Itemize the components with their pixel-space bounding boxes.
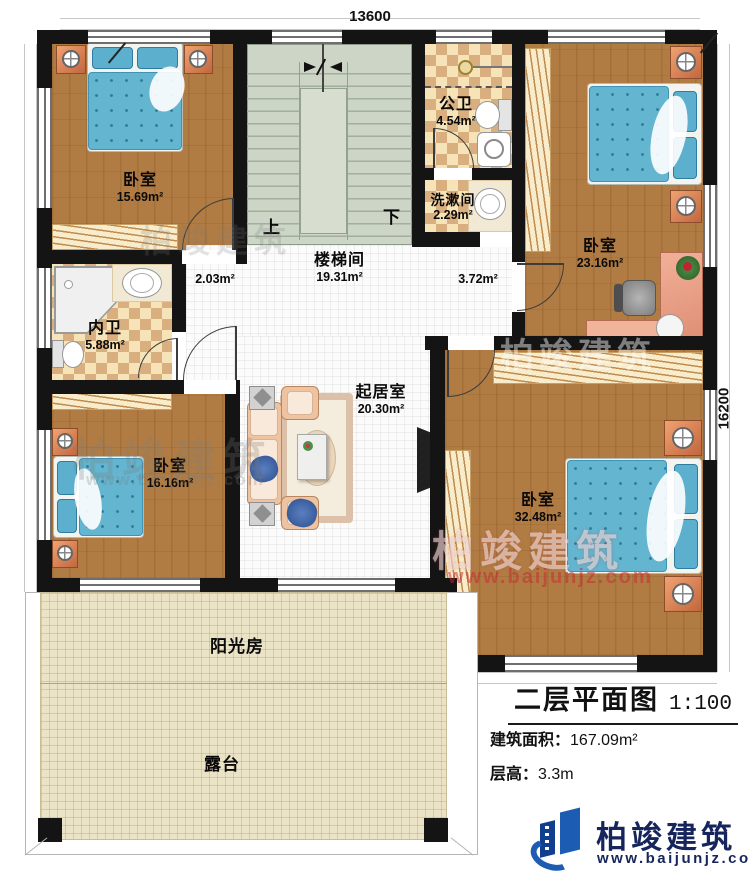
wall [425, 336, 448, 350]
door-opening [182, 250, 236, 264]
lamp-icon [672, 427, 694, 449]
room-label-bedroom-bottom-right: 卧室 32.48m² [492, 492, 584, 525]
window [278, 578, 395, 592]
building-area-value: 167.09m² [570, 732, 638, 749]
room-name: 卧室 [123, 172, 157, 190]
wall [472, 168, 512, 180]
stair-break-arrow-right [330, 62, 342, 72]
drawing-scale: 1:100 [669, 693, 732, 716]
window [272, 30, 342, 44]
room-label-living-room: 起居室 20.30m² [338, 384, 424, 417]
wardrobe [525, 48, 551, 252]
room-name: 露台 [204, 755, 240, 775]
window [88, 30, 210, 44]
corner-column [424, 818, 448, 842]
room-area: 3.72m² [458, 272, 498, 286]
sofa-cushion [250, 407, 278, 436]
wall [37, 250, 182, 264]
lamp-icon [672, 583, 694, 605]
wardrobe [52, 224, 178, 250]
room-area: 15.69m² [117, 190, 164, 204]
sunroom-terrace-floor [40, 592, 447, 840]
coffee-table [297, 434, 327, 480]
bed-pillow [57, 499, 77, 533]
room-area: 23.16m² [577, 256, 624, 270]
page-title: 二层平面图 [514, 678, 659, 717]
stair-down-text: 下 [383, 208, 401, 228]
lamp-icon [57, 433, 73, 449]
room-label-stairwell: 楼梯间 19.31m² [292, 252, 387, 285]
door-opening [184, 380, 236, 394]
shower-curtain-line [425, 86, 512, 88]
stair-stringer-right [347, 62, 348, 240]
title-block: 二层平面图 1:100 建筑面积：167.09m² 层高：3.3m [478, 672, 740, 802]
room-label-sunroom: 阳光房 [177, 637, 297, 657]
door-opening [480, 232, 512, 247]
armchair-cushion [287, 391, 313, 415]
door-leaf [232, 198, 234, 250]
room-area: 32.48m² [515, 510, 562, 524]
room-label-public-bathroom: 公卫 4.54m² [420, 96, 492, 129]
building-area-label: 建筑面积： [490, 732, 570, 749]
room-area: 2.29m² [433, 208, 473, 222]
door-leaf [235, 326, 237, 380]
room-name: 洗漱间 [431, 192, 476, 208]
window [37, 268, 52, 348]
shower-head-icon [458, 60, 473, 75]
wall [37, 380, 184, 394]
door-opening [434, 168, 472, 180]
room-name: 卧室 [583, 238, 617, 256]
window [37, 88, 52, 208]
logo-icon [532, 810, 590, 874]
room-name: 公卫 [439, 96, 473, 114]
stair-up-text: 上 [263, 218, 281, 238]
room-name: 卧室 [153, 458, 187, 476]
washing-machine-drum [484, 139, 504, 159]
room-area: 20.30m² [358, 402, 405, 416]
table-flowers [303, 441, 313, 451]
room-label-washroom: 洗漱间 2.29m² [418, 192, 488, 222]
stair-down-label: 下 [378, 208, 406, 228]
shower-hose [473, 66, 512, 68]
logo-url: www.baijunjz.com [597, 850, 750, 867]
corner-column [38, 818, 62, 842]
floor-height-value: 3.3m [538, 766, 574, 783]
wall [703, 30, 717, 672]
room-name: 起居室 [355, 384, 406, 402]
dimension-top: 13600 [300, 8, 440, 25]
plant-flower [683, 262, 692, 271]
tv [417, 427, 430, 493]
room-label-bedroom-top-right: 卧室 23.16m² [555, 238, 645, 271]
window [80, 578, 200, 592]
wall [412, 232, 480, 247]
room-name: 楼梯间 [314, 252, 365, 270]
room-label-bedroom-top-left: 卧室 15.69m² [95, 172, 185, 205]
wall [233, 44, 247, 245]
wall [512, 312, 525, 336]
window-sill-lines-left [24, 44, 37, 592]
wall [225, 380, 240, 578]
room-name: 内卫 [88, 320, 122, 338]
toilet-tank [498, 99, 512, 131]
door-opening [448, 336, 494, 350]
room-label-hall-west: 2.03m² [185, 272, 245, 286]
floor-height-label: 层高： [490, 766, 538, 783]
window [37, 430, 52, 540]
lamp-icon [189, 50, 207, 68]
shower-drain [64, 280, 73, 289]
floor-plan: 卧室 15.69m² 楼梯间 19.31m² 2.03m² 3.72m² 公卫 … [0, 0, 750, 885]
wall [172, 264, 186, 332]
room-name: 卧室 [521, 492, 555, 510]
lamp-icon [62, 50, 80, 68]
office-chair-back [614, 284, 623, 312]
room-name: 阳光房 [210, 637, 264, 657]
room-area: 4.54m² [436, 114, 476, 128]
stair-up-label: 上 [258, 218, 286, 238]
lamp-icon [57, 545, 73, 561]
stair-break-arrow-left [304, 62, 316, 72]
brand-logo: 柏竣建筑 www.baijunjz.com [498, 808, 740, 878]
office-chair [622, 280, 656, 316]
room-label-terrace: 露台 [172, 755, 272, 775]
window [548, 30, 665, 44]
stair-landing [300, 88, 347, 234]
stair-center-line [322, 44, 324, 92]
window [436, 30, 492, 44]
room-label-hall-east: 3.72m² [445, 272, 511, 286]
room-label-private-bathroom: 内卫 5.88m² [70, 320, 140, 353]
wardrobe [493, 352, 703, 384]
door-leaf [433, 128, 435, 168]
room-area: 2.03m² [195, 272, 235, 286]
sunroom-terrace-divider [40, 683, 447, 684]
door-leaf [447, 350, 449, 397]
wall [494, 336, 703, 350]
window-sill-lines-right [717, 44, 730, 672]
room-label-bedroom-bottom-left: 卧室 16.16m² [125, 458, 215, 491]
window [703, 185, 717, 267]
dimension-right: 16200 [716, 369, 733, 449]
washbasin-inner [130, 273, 154, 293]
door-leaf [176, 338, 178, 380]
lamp-icon [676, 52, 696, 72]
window [505, 655, 637, 672]
lamp-icon [676, 196, 696, 216]
room-area: 16.16m² [147, 476, 194, 490]
room-area: 5.88m² [85, 338, 125, 352]
wall [412, 168, 434, 180]
wall [512, 44, 525, 262]
room-area: 19.31m² [316, 270, 363, 284]
